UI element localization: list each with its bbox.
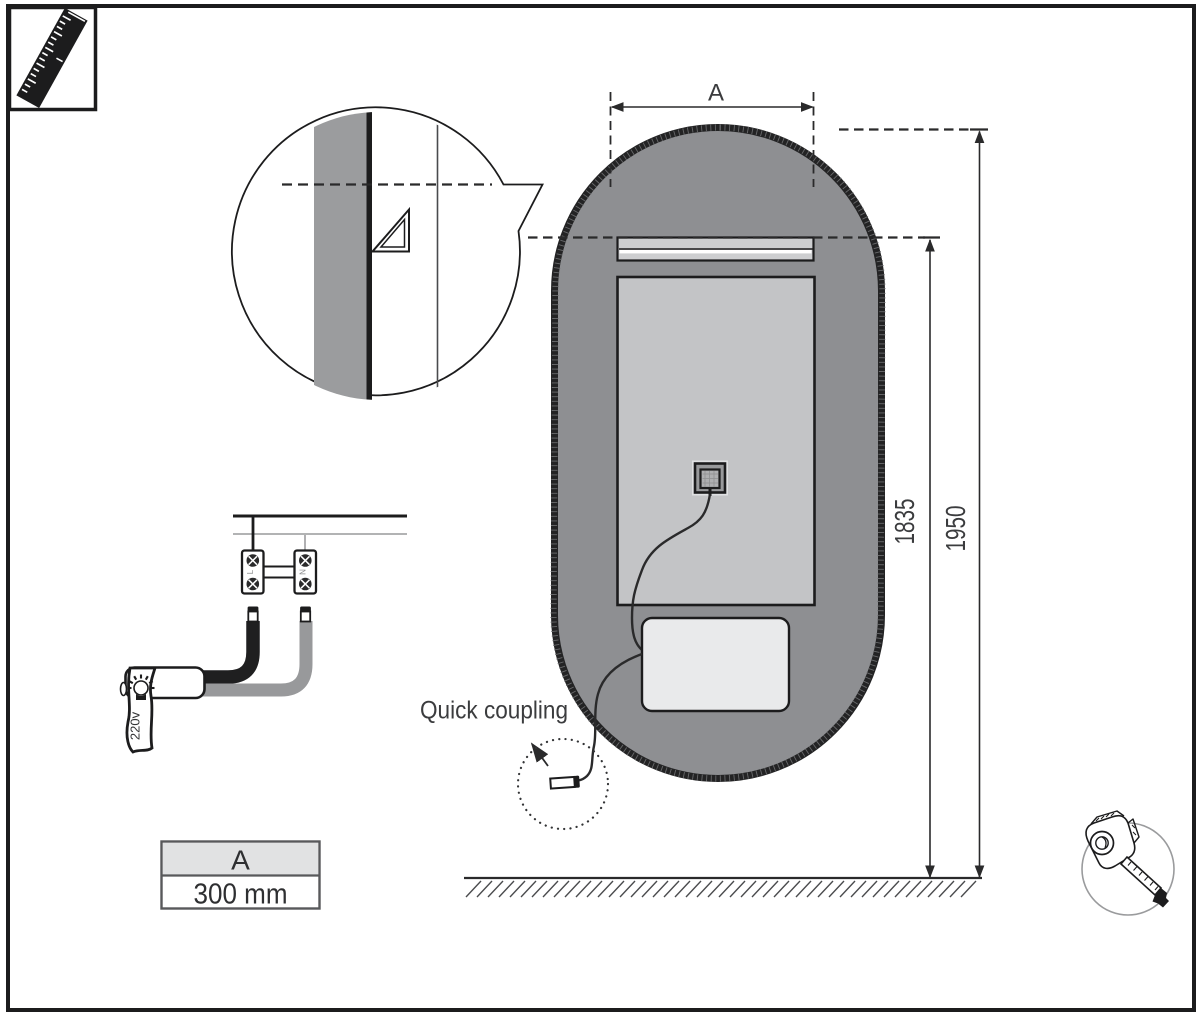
svg-text:L: L: [246, 569, 255, 574]
svg-text:Quick coupling: Quick coupling: [420, 697, 568, 725]
svg-text:1835: 1835: [889, 499, 920, 545]
svg-text:A: A: [231, 845, 250, 876]
svg-text:A: A: [708, 80, 724, 107]
svg-text:N: N: [298, 569, 307, 575]
svg-text:1950: 1950: [940, 506, 971, 552]
svg-text:300 mm: 300 mm: [194, 879, 288, 911]
svg-text:220v: 220v: [128, 711, 143, 740]
